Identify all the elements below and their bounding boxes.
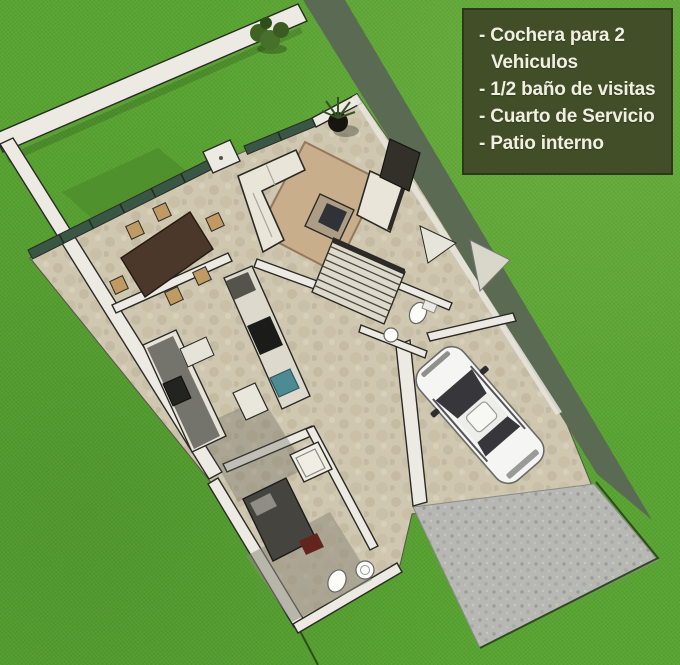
feature-item-garage: - Cochera para 2 Vehiculos [479,22,663,76]
feature-item-service-room: - Cuarto de Servicio [479,103,663,130]
feature-info-box: - Cochera para 2 Vehiculos - 1/2 baño de… [462,8,673,175]
feature-item-half-bath: - 1/2 baño de visitas [479,76,663,103]
feature-item-patio: - Patio interno [479,130,663,157]
feature-list: - Cochera para 2 Vehiculos - 1/2 baño de… [479,22,663,157]
lot-boundary-line-south [299,629,318,665]
service-sink [356,561,374,579]
guest-sink [384,328,398,342]
floor-plan-scene: - Cochera para 2 Vehiculos - 1/2 baño de… [0,0,680,665]
driveway [413,484,658,648]
door-handle-dot [219,156,223,160]
